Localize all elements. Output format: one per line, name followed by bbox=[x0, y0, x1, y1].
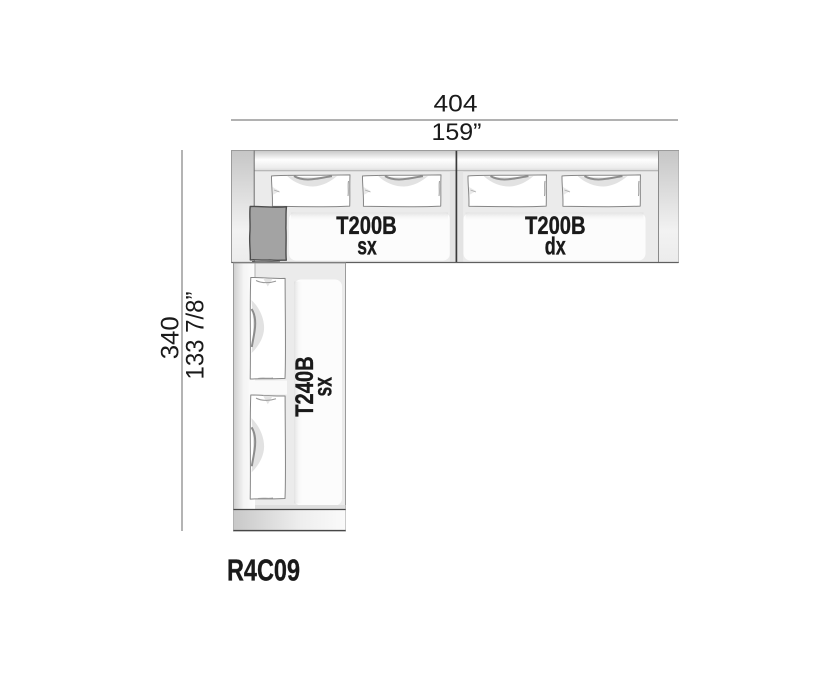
svg-text:dx: dx bbox=[545, 233, 566, 261]
svg-text:340: 340 bbox=[157, 316, 185, 359]
svg-text:sx: sx bbox=[310, 377, 338, 397]
svg-text:133 7/8”: 133 7/8” bbox=[182, 292, 210, 380]
svg-text:404: 404 bbox=[434, 91, 478, 118]
svg-text:sx: sx bbox=[357, 233, 377, 261]
svg-text:R4C09: R4C09 bbox=[227, 554, 300, 588]
svg-text:159”: 159” bbox=[432, 119, 482, 146]
